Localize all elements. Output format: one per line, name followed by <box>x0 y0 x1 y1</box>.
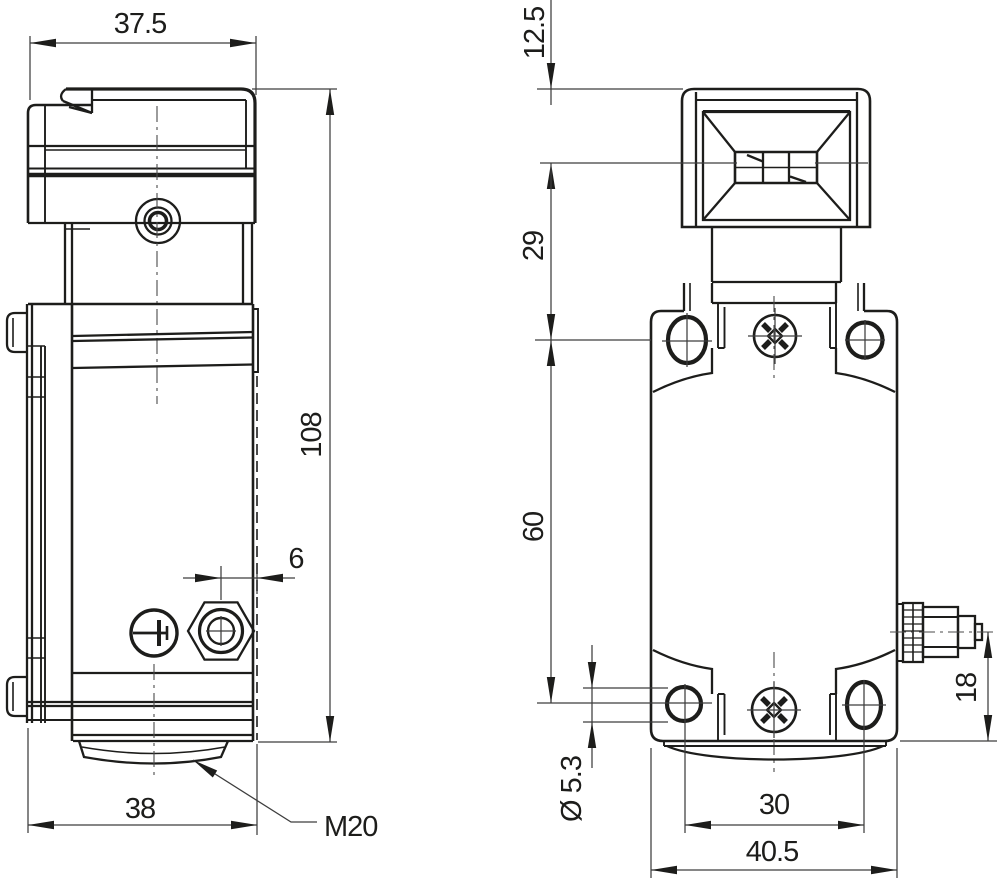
mounting-hole-bottom-left <box>667 687 701 721</box>
dim-base-width: 38 <box>28 728 257 835</box>
m20-callout: M20 <box>193 760 377 843</box>
dim-hole-diameter: Ø 5.3 <box>556 645 685 833</box>
dim-top-to-aperture-label: 12.5 <box>519 7 551 59</box>
head-collar <box>712 227 841 282</box>
dim-top-to-aperture: 12.5 <box>519 0 868 189</box>
side-cover-plate <box>27 304 45 723</box>
bottom-cap <box>664 741 886 760</box>
actuator-aperture <box>703 112 850 220</box>
dim-aperture-to-flange: 29 <box>518 163 651 703</box>
dim-overall-height: 108 <box>252 89 337 742</box>
m12-connector <box>890 603 997 662</box>
ground-symbol <box>131 610 177 656</box>
side-view-head <box>28 89 255 404</box>
front-view-body <box>651 283 997 772</box>
dim-hole-diameter-label: Ø 5.3 <box>556 756 588 822</box>
side-view-body <box>7 304 258 775</box>
mounting-hole-top-right <box>845 320 885 360</box>
m20-label: M20 <box>324 811 377 843</box>
cover-screw-top <box>7 313 28 352</box>
dim-head-width: 37.5 <box>30 8 256 100</box>
dim-body-width-label: 40.5 <box>746 836 798 868</box>
dim-gland-offset: 6 <box>183 543 304 600</box>
dim-aperture-to-flange-label: 29 <box>518 231 550 261</box>
cover-screw-bottom <box>7 677 28 716</box>
technical-drawing: 37.5 108 6 38 M20 <box>0 0 1000 880</box>
dim-connector-height-label: 18 <box>951 673 983 703</box>
dim-flange-to-hole-label: 60 <box>518 512 550 542</box>
dim-connector-height: 18 <box>900 632 997 741</box>
dim-overall-height-label: 108 <box>296 412 328 457</box>
mounting-hole-top-left <box>662 313 712 367</box>
phillips-screw-top <box>748 308 802 364</box>
front-view-head <box>682 89 870 282</box>
dim-flange-to-hole: 60 <box>518 340 712 703</box>
dim-head-width-label: 37.5 <box>114 8 166 40</box>
dim-gland-offset-label: 6 <box>288 543 303 575</box>
front-view <box>651 89 997 772</box>
dim-base-width-label: 38 <box>125 793 155 825</box>
head-screw <box>136 199 180 243</box>
side-view <box>7 89 258 775</box>
cable-gland-side <box>188 602 254 659</box>
technical-drawing-page: 37.5 108 6 38 M20 <box>0 0 1000 880</box>
dim-hole-spacing-label: 30 <box>759 789 789 821</box>
